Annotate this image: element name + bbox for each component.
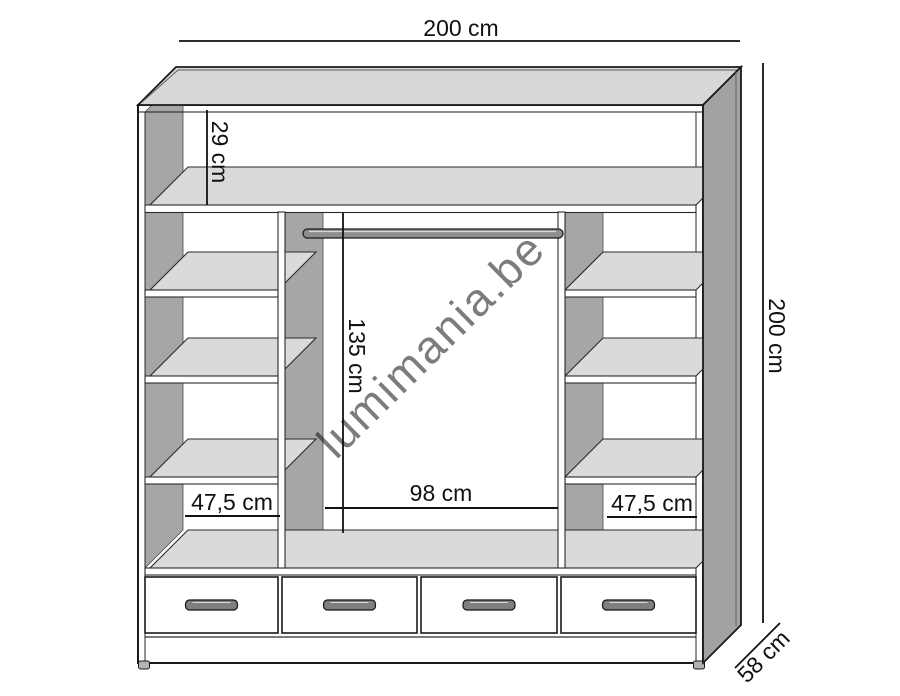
top-shelf-front-edge [145, 205, 696, 213]
drawer-handle-2 [324, 600, 376, 610]
drawer-handle-3 [463, 600, 515, 610]
left-divider-front-edge [278, 212, 285, 568]
left-shelf-front-edge [145, 290, 278, 297]
right-shelf-front-edge [565, 477, 696, 484]
top-compartment-height-label: 29 cm [207, 121, 233, 184]
overall-height-label: 200 cm [764, 298, 790, 373]
right-divider-front-edge [558, 212, 565, 568]
left-shelf-front-edge [145, 477, 278, 484]
drawer-handle-1 [186, 600, 238, 610]
right-compartment-width-label: 47,5 cm [611, 490, 693, 516]
overall-width-label: 200 cm [423, 15, 498, 41]
depth-label: 58 cm [732, 625, 795, 688]
drawer-handle-4 [603, 600, 655, 610]
hanging-width-label: 98 cm [410, 480, 473, 506]
foot-left [139, 661, 150, 669]
diagram-svg: 200 cm 200 cm 29 cm 135 cm 98 cm 47,5 cm… [0, 0, 900, 696]
wardrobe-top-face [138, 67, 741, 105]
bottom-shelf-surface [150, 530, 734, 568]
wardrobe-right-side-face [703, 67, 741, 663]
left-shelf-front-edge [145, 376, 278, 383]
right-shelf-front-edge [565, 290, 696, 297]
wardrobe-dimension-diagram: 200 cm 200 cm 29 cm 135 cm 98 cm 47,5 cm… [0, 0, 900, 696]
top-shelf-surface [150, 167, 734, 205]
bottom-shelf-front-edge [145, 568, 696, 575]
right-shelf-front-edge [565, 376, 696, 383]
left-compartment-width-label: 47,5 cm [191, 489, 273, 515]
left-side-inner-panel [145, 74, 183, 568]
